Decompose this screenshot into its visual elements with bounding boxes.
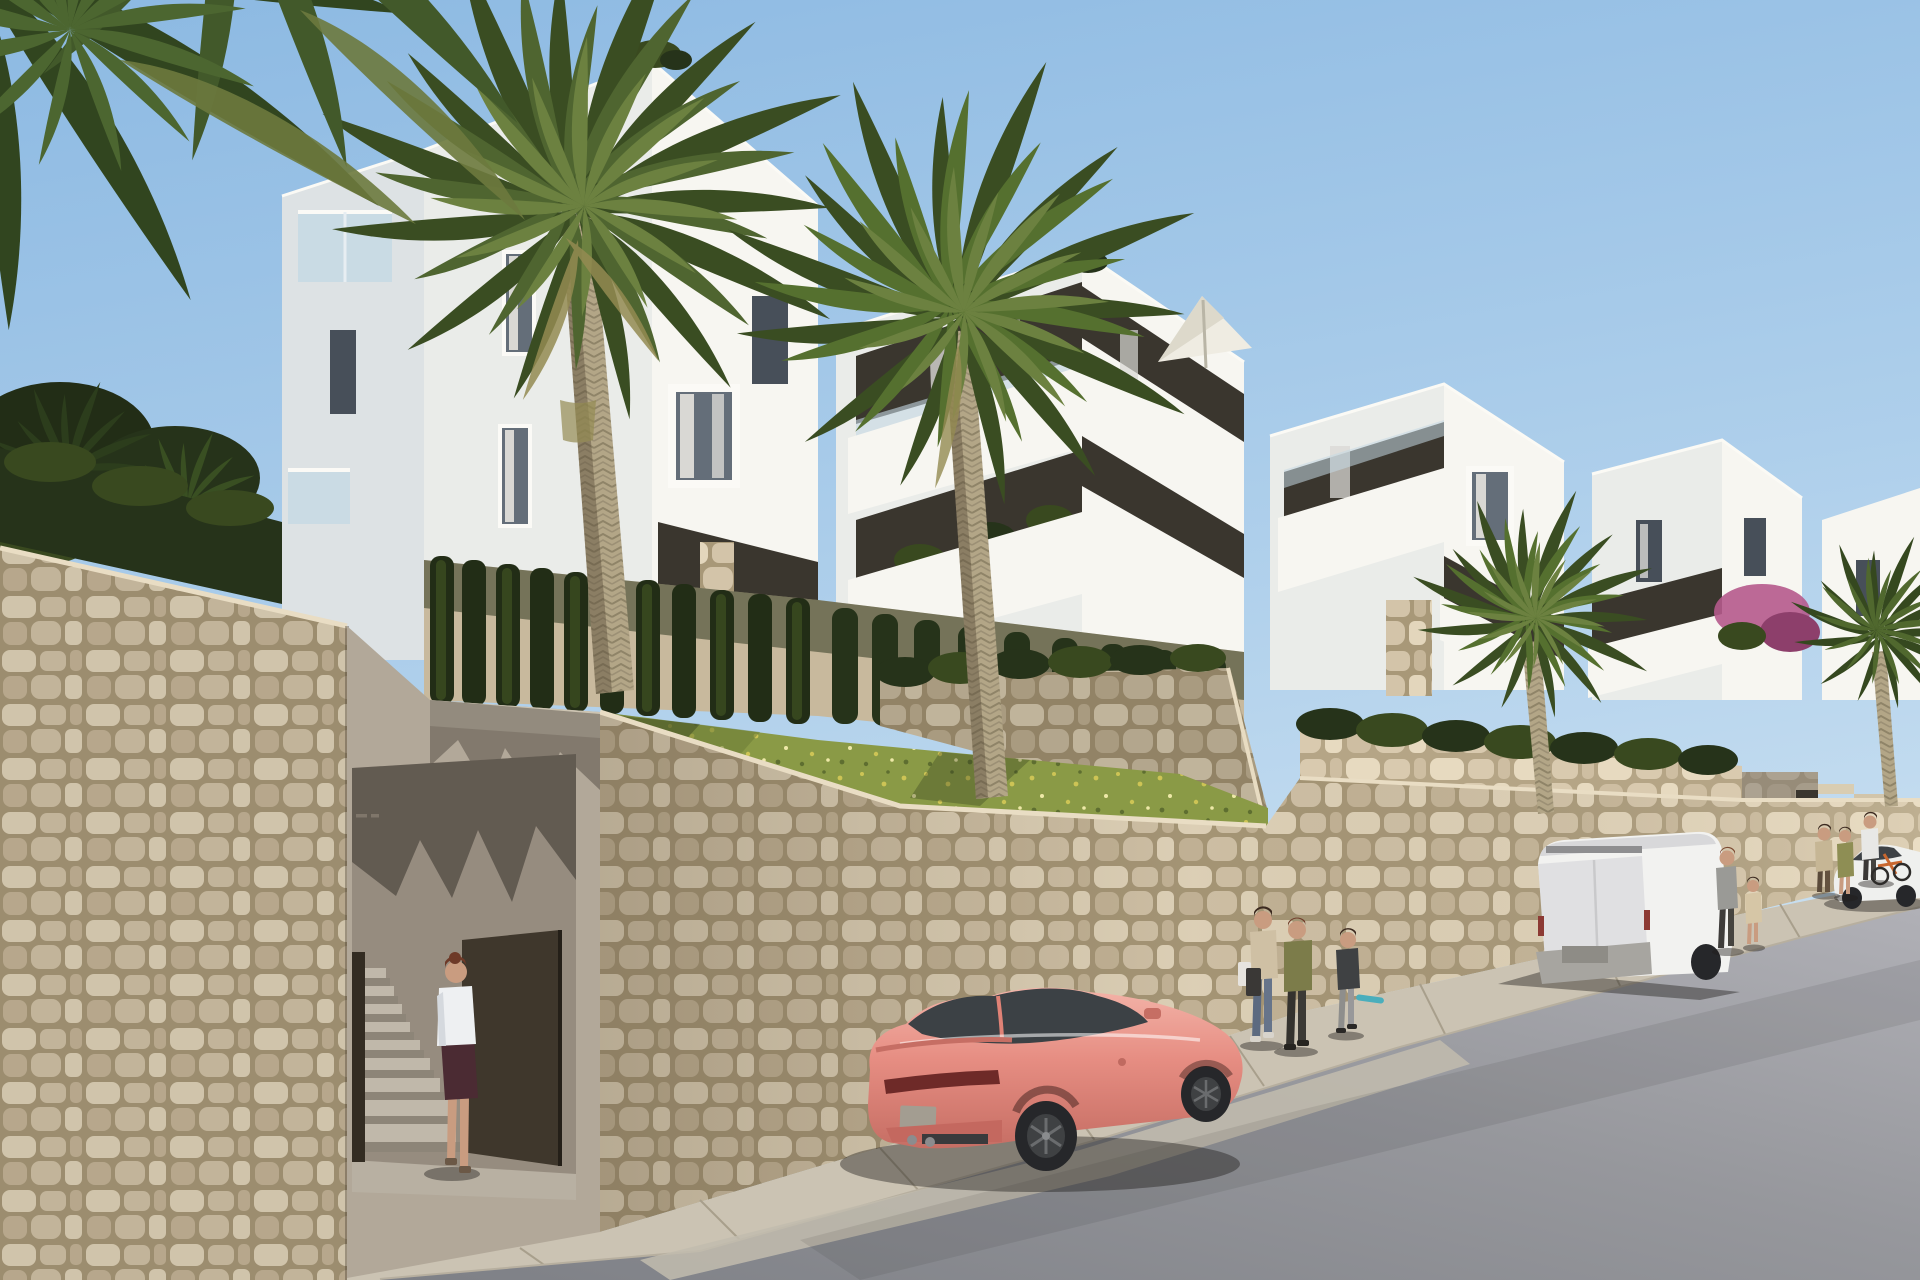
open-metal-gate — [462, 930, 560, 1166]
pedestrian-entrance — [347, 626, 600, 1280]
tall-window — [498, 424, 532, 528]
stone-clad-pillar — [1386, 600, 1432, 696]
car-rear-wheel — [1015, 1101, 1077, 1171]
van-roof-trim — [1546, 846, 1642, 853]
stone-wall-left — [0, 548, 347, 1280]
car-door-handle — [1118, 1058, 1126, 1066]
car-mirror — [1144, 1008, 1161, 1019]
gate-panel-closed — [352, 952, 365, 1162]
framed-window-curtains — [668, 384, 740, 488]
glass-balcony — [298, 212, 392, 282]
dark-bag — [1246, 968, 1261, 996]
architectural-render-scene — [0, 0, 1920, 1280]
van-license-plate — [1562, 946, 1608, 963]
scene-svg — [0, 0, 1920, 1280]
